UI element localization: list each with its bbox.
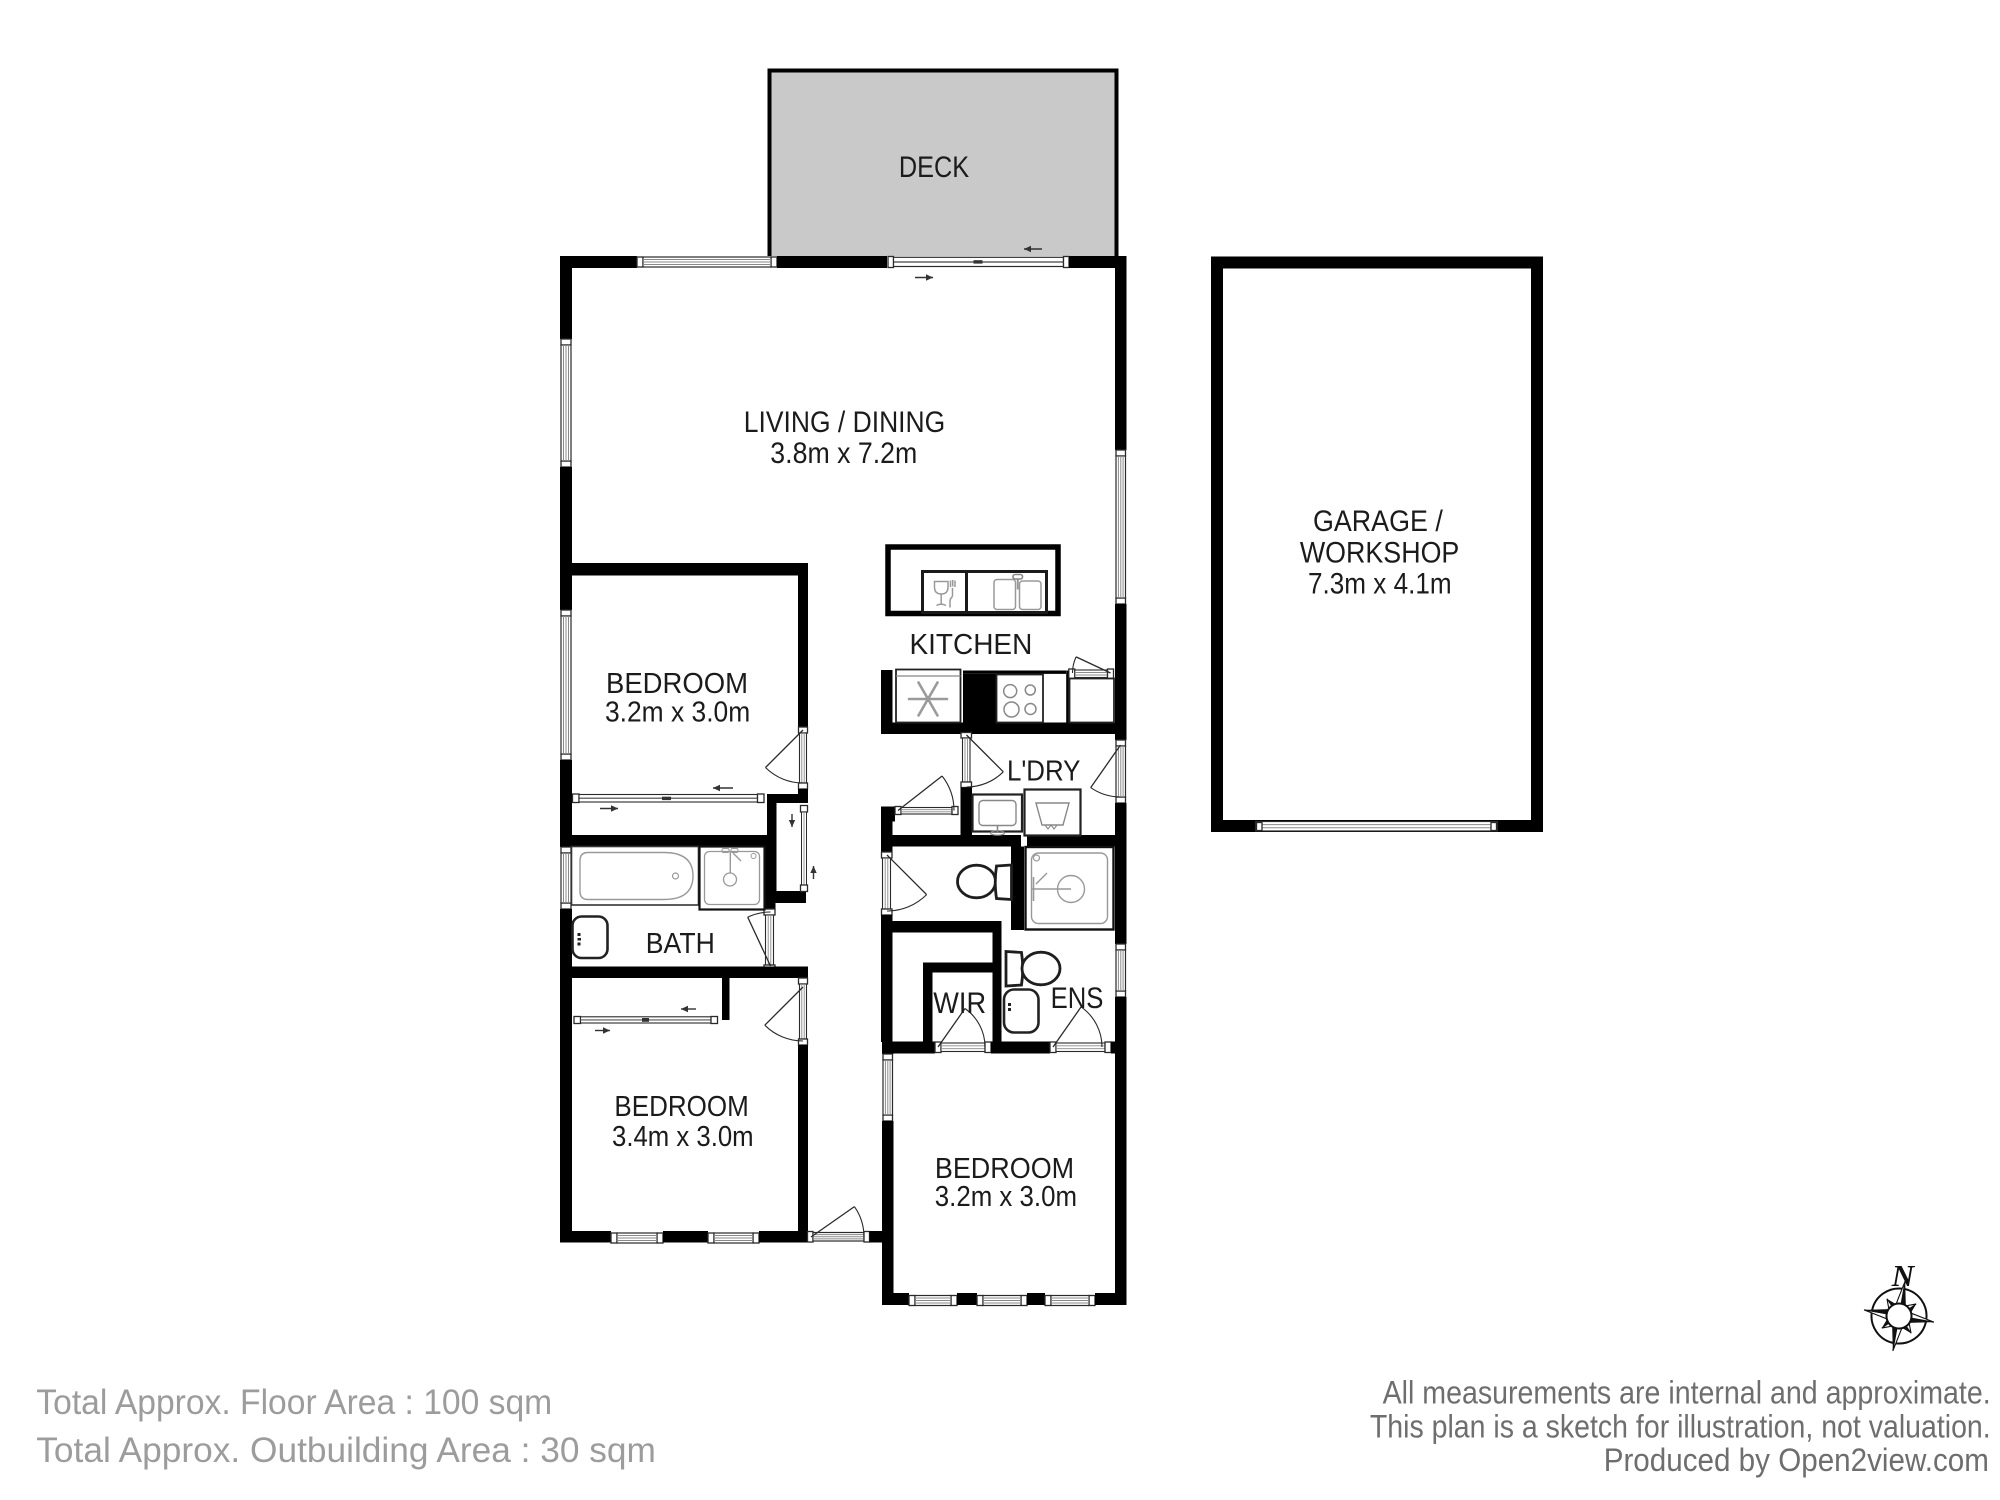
svg-text:Total Approx. Floor Area : 100: Total Approx. Floor Area : 100 sqm (36, 1383, 552, 1422)
svg-text:BEDROOM: BEDROOM (614, 1091, 748, 1123)
svg-text:N: N (1891, 1258, 1916, 1293)
svg-text:Produced by Open2view.com: Produced by Open2view.com (1604, 1442, 1989, 1478)
svg-text:7.3m x 4.1m: 7.3m x 4.1m (1308, 568, 1452, 601)
svg-text:WIR: WIR (933, 987, 986, 1020)
svg-text:DECK: DECK (899, 151, 969, 184)
svg-text:3.2m x 3.0m: 3.2m x 3.0m (935, 1181, 1077, 1213)
svg-text:3.2m x 3.0m: 3.2m x 3.0m (605, 697, 750, 729)
svg-text:Total Approx. Outbuilding Area: Total Approx. Outbuilding Area : 30 sqm (36, 1431, 656, 1470)
svg-text:3.4m x 3.0m: 3.4m x 3.0m (612, 1121, 754, 1153)
svg-text:All measurements are internal: All measurements are internal and approx… (1383, 1375, 1991, 1411)
svg-text:WORKSHOP: WORKSHOP (1300, 537, 1460, 570)
svg-text:GARAGE /: GARAGE / (1313, 505, 1443, 538)
svg-text:KITCHEN: KITCHEN (909, 629, 1032, 661)
svg-text:L'DRY: L'DRY (1007, 756, 1081, 788)
svg-text:BATH: BATH (646, 928, 715, 960)
svg-text:This plan is a sketch for illu: This plan is a sketch for illustration, … (1370, 1409, 1991, 1445)
svg-text:3.8m x 7.2m: 3.8m x 7.2m (770, 437, 917, 470)
svg-text:ENS: ENS (1051, 982, 1104, 1015)
svg-text:BEDROOM: BEDROOM (606, 668, 748, 700)
svg-text:LIVING / DINING: LIVING / DINING (744, 406, 946, 439)
